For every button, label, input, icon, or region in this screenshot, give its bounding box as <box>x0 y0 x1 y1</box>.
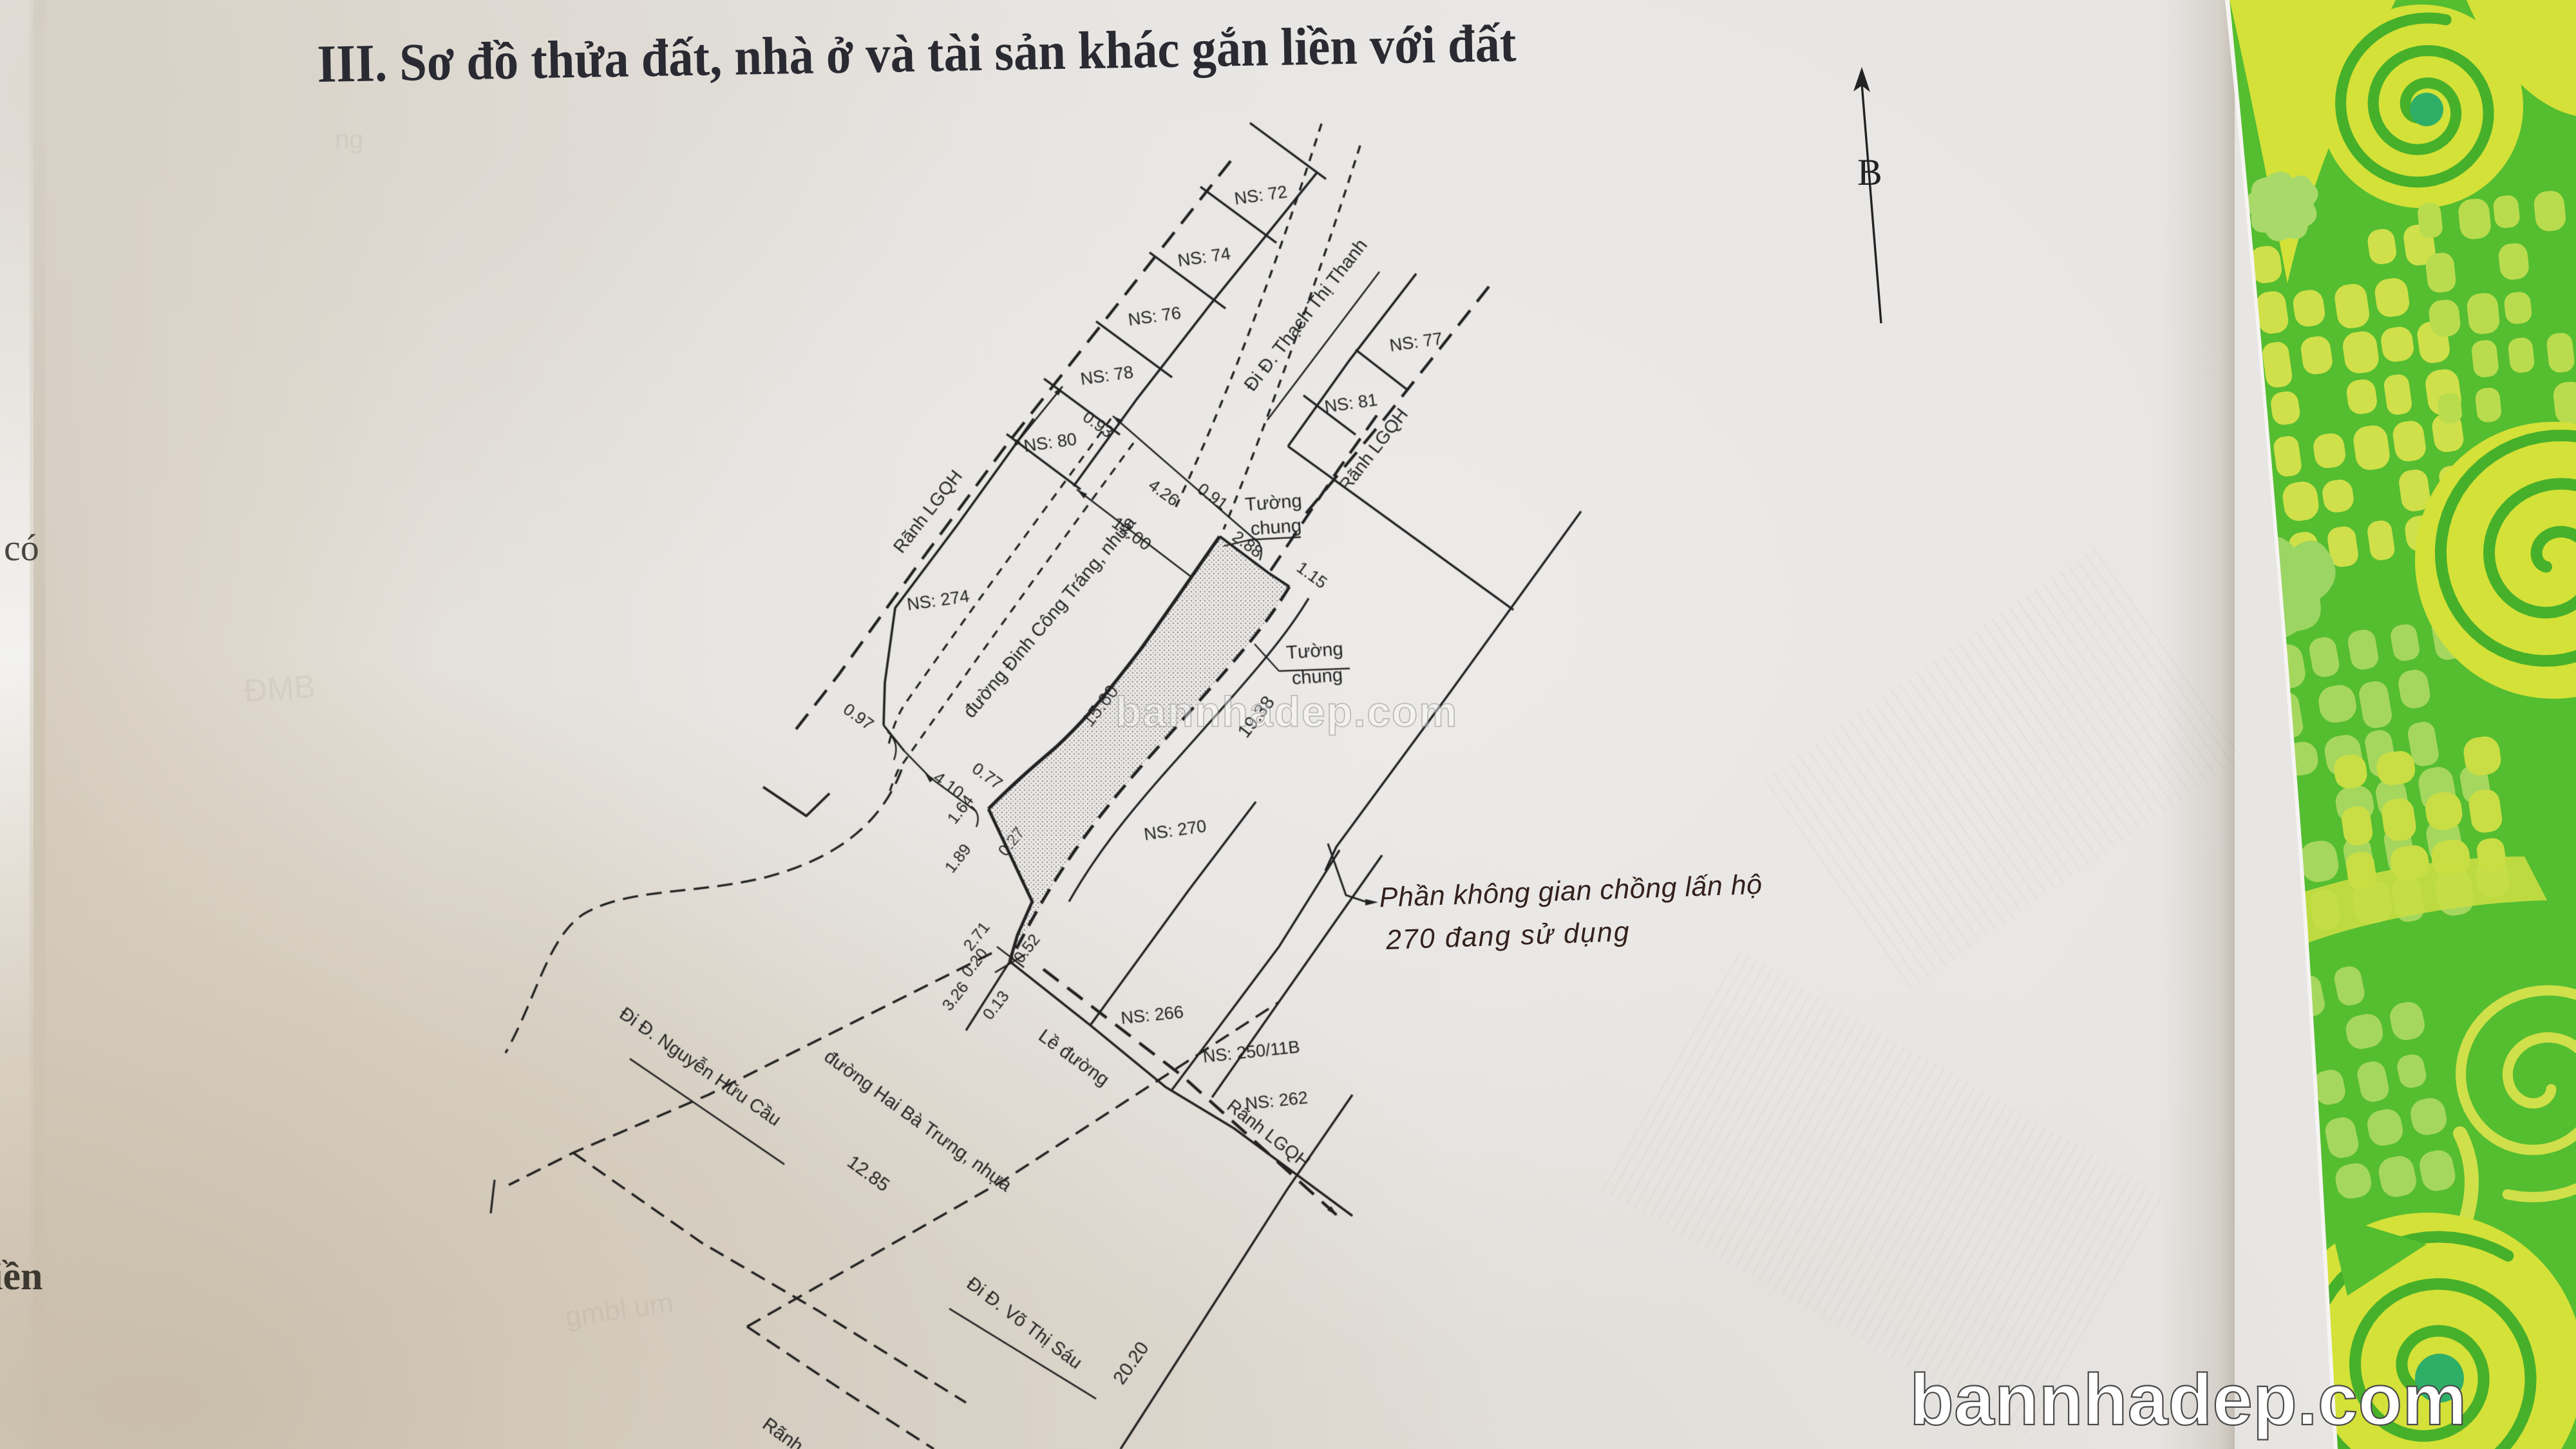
svg-text:liền: liền <box>0 1255 43 1298</box>
svg-text:bannhadep.com: bannhadep.com <box>1115 688 1458 735</box>
svg-text:ĐMB: ĐMB <box>243 668 317 709</box>
svg-text:có: có <box>4 527 39 569</box>
svg-text:ng: ng <box>335 126 364 154</box>
svg-text:Tường: Tường <box>1244 491 1302 515</box>
svg-text:B: B <box>1857 151 1882 193</box>
svg-text:bannhadep.com: bannhadep.com <box>1909 1359 2467 1440</box>
svg-text:Tường: Tường <box>1285 639 1343 663</box>
